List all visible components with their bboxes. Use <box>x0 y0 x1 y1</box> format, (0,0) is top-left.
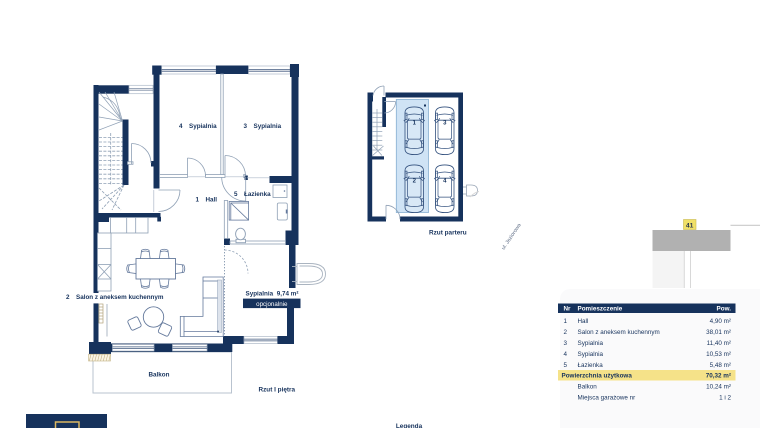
svg-text:Hall: Hall <box>206 197 218 204</box>
svg-text:Sypialnia: Sypialnia <box>254 123 282 130</box>
svg-text:5,48 m²: 5,48 m² <box>710 362 731 369</box>
svg-text:Pow.: Pow. <box>717 306 732 313</box>
svg-text:38,01 m²: 38,01 m² <box>706 329 731 336</box>
svg-text:2: 2 <box>564 329 568 336</box>
svg-text:4: 4 <box>179 123 183 130</box>
svg-text:Sypialnia: Sypialnia <box>246 290 274 297</box>
svg-text:Miejsca garażowe nr: Miejsca garażowe nr <box>578 395 636 402</box>
svg-text:Sypialnia: Sypialnia <box>189 123 217 130</box>
svg-text:Łazienka: Łazienka <box>578 362 604 369</box>
svg-text:Balkon: Balkon <box>578 384 598 391</box>
svg-text:4: 4 <box>564 351 568 358</box>
svg-text:10,53 m²: 10,53 m² <box>706 351 731 358</box>
svg-text:3: 3 <box>244 123 248 130</box>
svg-text:1: 1 <box>196 197 200 204</box>
svg-text:2: 2 <box>66 294 70 301</box>
svg-text:Rzut I piętra: Rzut I piętra <box>259 387 296 394</box>
svg-text:opcjonalnie: opcjonalnie <box>256 301 288 308</box>
svg-text:4,90 m²: 4,90 m² <box>710 318 731 325</box>
svg-text:Balkon: Balkon <box>149 372 170 379</box>
svg-text:Legenda: Legenda <box>396 423 423 428</box>
svg-text:Sypialnia: Sypialnia <box>578 351 604 358</box>
svg-text:Łazienka: Łazienka <box>244 191 271 198</box>
svg-text:Powierzchnia użytkowa: Powierzchnia użytkowa <box>562 373 633 380</box>
svg-text:11,40 m²: 11,40 m² <box>707 340 731 347</box>
svg-text:Pomieszczenie: Pomieszczenie <box>578 306 623 313</box>
svg-text:Sypialnia: Sypialnia <box>578 340 604 347</box>
svg-text:1: 1 <box>564 318 568 325</box>
svg-text:Hall: Hall <box>578 318 589 325</box>
svg-text:9,74 m²: 9,74 m² <box>277 290 299 297</box>
svg-text:Rzut parteru: Rzut parteru <box>429 229 467 236</box>
svg-text:70,32 m²: 70,32 m² <box>706 373 731 380</box>
svg-text:41: 41 <box>686 222 694 229</box>
svg-text:1 i 2: 1 i 2 <box>719 395 731 402</box>
svg-text:10,24 m²: 10,24 m² <box>706 384 731 391</box>
svg-text:3: 3 <box>564 340 568 347</box>
svg-text:Salon z aneksem kuchennym: Salon z aneksem kuchennym <box>76 294 164 301</box>
svg-text:5: 5 <box>234 191 238 198</box>
svg-text:Nr: Nr <box>564 306 572 313</box>
svg-text:Salon z aneksem kuchennym: Salon z aneksem kuchennym <box>578 329 660 336</box>
svg-text:5: 5 <box>564 362 568 369</box>
